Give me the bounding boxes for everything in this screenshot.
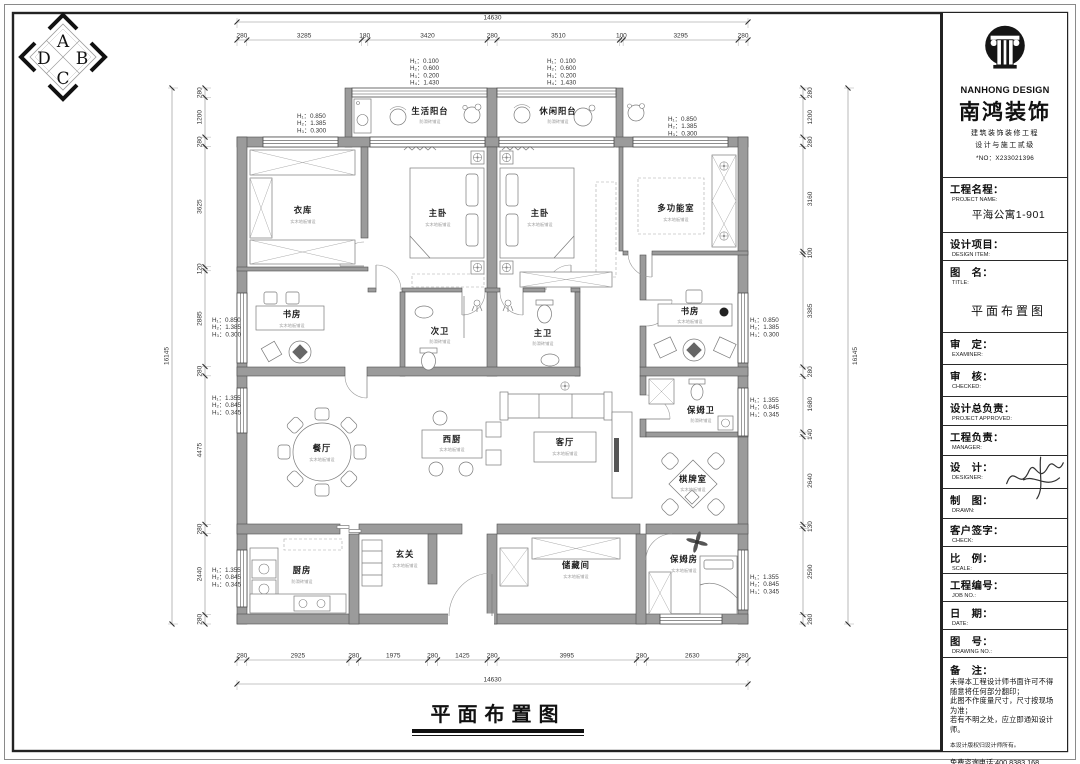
dim-label: 280 [807, 136, 814, 147]
room-name: 主卫 [534, 328, 553, 338]
elevation-line: H₁：1.355 [750, 574, 779, 581]
room-name: 棋牌室 [679, 474, 707, 484]
room-floor-note: 防滑砖铺设 [292, 578, 314, 585]
dim-label: 14630 [483, 15, 501, 22]
field-label-en: DATE: [952, 621, 1067, 627]
room-floor-note: 防滑砖铺设 [548, 118, 570, 125]
elevation-line: H₃：0.200 [547, 72, 577, 79]
elevation-line: H₁：0.850 [668, 116, 697, 123]
field-project-name: 工程名程： PROJECT NAME: 平海公寓1-901 [943, 178, 1067, 233]
dim-label: 3385 [807, 303, 814, 318]
room-floor-note: 实木地板铺设 [671, 567, 697, 574]
compass-letter-c: C [56, 69, 69, 89]
designer-signature [1001, 450, 1067, 504]
room-floor-note: 实木地板铺设 [677, 318, 703, 325]
dim-label: 1200 [807, 110, 814, 125]
elevation-line: H₁：0.100 [410, 58, 439, 65]
elevation-line: H₁：1.355 [212, 395, 241, 402]
field-label-cn: 工程负责： [950, 429, 1067, 444]
brand-name-cn: 南鸿装饰 [943, 96, 1067, 126]
elevation-line: H₃：0.345 [750, 411, 780, 418]
window [738, 550, 748, 610]
dim-label: 1200 [197, 110, 204, 125]
title-block: NANHONG DESIGN 南鸿装饰 建筑装饰装修工程 设计与施工贰级 *NO… [941, 13, 1067, 751]
field-label-en: SCALE: [952, 566, 1067, 572]
dim-total-left: 16145 [164, 86, 179, 627]
dim-label: 280 [197, 87, 204, 98]
field-label-en: DRAWN: [952, 508, 1067, 514]
elevation-stack: H₁：0.850H₂：1.385H₃：0.300 [297, 113, 327, 134]
dim-label: 280 [197, 365, 204, 376]
company-logo-icon [978, 23, 1032, 79]
elevation-line: H₂：0.600 [547, 65, 577, 72]
dim-label: 280 [487, 33, 498, 40]
dim-label: 100 [807, 247, 814, 258]
dim-label: 2925 [291, 653, 306, 660]
drawing-title-text: 平面布置图 [412, 698, 584, 727]
dim-label: 280 [738, 653, 749, 660]
elevation-line: H₂：1.385 [297, 120, 327, 127]
elevation-stack: H₁：1.355H₂：0.845H₃：0.345 [750, 397, 780, 418]
dim-label: 3625 [197, 199, 204, 214]
dim-label: 3510 [551, 33, 566, 40]
window [352, 88, 487, 97]
field-label-cn: 工程名程： [950, 181, 1067, 196]
window [738, 293, 748, 363]
room-floor-note: 实木地板铺设 [563, 573, 589, 580]
dim-label: 16145 [852, 347, 859, 365]
dim-label: 130 [807, 521, 814, 532]
room-name: 主卧 [429, 208, 448, 218]
room-floor-note: 实木地板铺设 [527, 221, 553, 228]
room-name: 次卫 [431, 326, 450, 336]
room-floor-note: 防滑砖铺设 [420, 118, 442, 125]
dim-label: 280 [807, 366, 814, 377]
dim-label: 280 [197, 523, 204, 534]
field-label-en: PROJECT NAME: [952, 197, 1067, 203]
notes-section: 备 注： 未得本工程设计师书面许可不得 随意将任何部分翻印； 此图不作度量尺寸，… [943, 658, 1067, 764]
elevation-line: H₂：1.385 [212, 324, 242, 331]
note-line: 此图不作度量尺寸，尺寸按现场 [950, 696, 1063, 706]
dim-label: 2590 [807, 564, 814, 579]
field-label-en: DRAWING NO.: [952, 649, 1067, 655]
dim-chain-top: 2803285180342028035101003295280 [235, 33, 751, 47]
title-underline-thick [412, 729, 584, 733]
room-floor-note: 实木地板铺设 [680, 486, 706, 493]
field-scale: 比 例： SCALE: [943, 547, 1067, 574]
window [263, 137, 338, 147]
field-label-en: CHECKED: [952, 384, 1067, 390]
note-line: 师。 [950, 725, 1063, 735]
elevation-line: H₂：0.845 [212, 574, 242, 581]
dim-label: 1680 [807, 397, 814, 412]
field-label-en: CHECK: [952, 538, 1067, 544]
brand-section: NANHONG DESIGN 南鸿装饰 建筑装饰装修工程 设计与施工贰级 *NO… [943, 13, 1067, 178]
room-name: 玄关 [396, 549, 415, 559]
elevation-line: H₄：1.430 [547, 80, 577, 87]
elevation-line: H₂：0.845 [750, 581, 780, 588]
room-name: 主卧 [531, 208, 550, 218]
dim-label: 280 [807, 87, 814, 98]
room-name: 衣库 [294, 205, 313, 215]
note-line: 若有不明之处，应立即通知设计 [950, 715, 1063, 725]
dim-label: 4475 [197, 443, 204, 458]
room-name: 多功能室 [657, 203, 694, 213]
compass-letter-a: A [56, 32, 70, 52]
elevation-line: H₃：0.200 [410, 72, 440, 79]
dim-label: 280 [738, 33, 749, 40]
elevation-stack: H₁：0.850H₂：1.385H₃：0.300 [668, 116, 698, 137]
field-examiner: 审 定： EXAMINER: [943, 333, 1067, 365]
room-name: 生活阳台 [411, 106, 448, 116]
dim-total-right: 16145 [844, 86, 859, 627]
elevation-stack: H₁：1.355H₂：0.845H₃：0.345 [212, 567, 242, 588]
dim-label: 140 [807, 429, 814, 440]
dim-label: 16145 [164, 347, 171, 365]
field-label-cn: 客户签字： [950, 522, 1067, 537]
field-design-item: 设计项目： DESIGN ITEM: [943, 233, 1067, 261]
hotline: 免费咨询电话:400 8383 168 [950, 758, 1063, 764]
field-label-en: DESIGN ITEM: [952, 252, 1067, 258]
dim-label: 280 [197, 614, 204, 625]
elevation-line: H₂：0.845 [212, 402, 242, 409]
dim-label: 1425 [455, 653, 470, 660]
dim-total-bottom: 14630 [235, 677, 751, 691]
elevation-line: H₃：0.300 [297, 127, 327, 134]
room-floor-note: 实木地板铺设 [392, 562, 418, 569]
dim-label: 280 [236, 653, 247, 660]
elevation-line: H₁：1.355 [212, 567, 241, 574]
window [499, 137, 614, 147]
field-label-cn: 图 名： [950, 264, 1067, 279]
field-label-cn: 审 定： [950, 336, 1067, 351]
room-name: 厨房 [293, 565, 312, 575]
field-label-en: PROJECT APPROVED: [952, 416, 1067, 422]
room-name: 书房 [283, 309, 302, 319]
brand-line1: 建筑装饰装修工程 [943, 128, 1067, 138]
field-label-cn: 设计项目： [950, 236, 1067, 251]
dim-label: 14630 [483, 677, 501, 684]
dim-label: 2440 [197, 567, 204, 582]
brand-line2: 设计与施工贰级 [943, 140, 1067, 150]
brand-license-no: *NO：X233021396 [943, 153, 1067, 162]
dim-label: 1975 [386, 653, 401, 660]
elevation-line: H₃：0.300 [668, 130, 698, 137]
room-floor-note: 实木地板铺设 [290, 218, 316, 225]
room-floor-note: 实木地板铺设 [663, 216, 689, 223]
entry-door-opening [448, 614, 494, 625]
field-label-cn: 审 核： [950, 368, 1067, 383]
field-value: 平面布置图 [950, 302, 1067, 319]
dim-chain-bottom: 28029252801975280142528039952802630280 [235, 653, 751, 667]
dim-label: 3295 [673, 33, 688, 40]
drawing-title: 平面布置图 [412, 698, 584, 736]
sheet-border [5, 5, 1076, 760]
notes-label: 备 注： [950, 662, 1063, 677]
dim-label: 280 [427, 653, 438, 660]
field-label-en: TITLE: [952, 280, 1067, 286]
dim-chain-right: 2801200280316010033852801680140264013025… [799, 86, 814, 627]
elevation-line: H₁：0.100 [547, 58, 576, 65]
window [497, 88, 616, 97]
field-job-no: 工程编号： JOB NO.: [943, 574, 1067, 602]
window [738, 388, 748, 436]
elevation-stack: H₁：0.850H₂：1.385H₃：0.300 [212, 317, 242, 338]
room-floor-note: 实木地板铺设 [439, 446, 465, 453]
field-value: 平海公寓1-901 [950, 207, 1067, 222]
dim-label: 280 [807, 614, 814, 625]
compass-letter-d: D [37, 49, 51, 69]
quadrant-compass: A B C D [21, 15, 105, 99]
field-label-cn: 工程编号： [950, 577, 1067, 592]
room-floor-note: 防滑砖铺设 [533, 340, 555, 347]
room-name: 保姆卫 [686, 405, 715, 415]
window [370, 137, 485, 147]
dim-chain-left: 28012002803625120288528044752802440280 [197, 86, 212, 627]
field-label-cn: 日 期： [950, 605, 1067, 620]
field-label-cn: 设计总负责： [950, 400, 1067, 415]
dim-label: 3995 [560, 653, 575, 660]
room-floor-note: 实木地板铺设 [279, 322, 305, 329]
title-underline-thin [412, 735, 584, 736]
elevation-line: H₂：1.385 [668, 123, 698, 130]
room-name: 客厅 [555, 437, 575, 447]
dim-label: 2885 [197, 311, 204, 326]
room-name: 储藏间 [562, 560, 590, 570]
dim-label: 2640 [807, 473, 814, 488]
compass-letter-b: B [76, 49, 89, 69]
elevation-line: H₁：0.850 [212, 317, 241, 324]
dim-label: 3420 [420, 33, 435, 40]
elevation-line: H₁：0.850 [297, 113, 326, 120]
elevation-line: H₃：0.345 [750, 588, 780, 595]
elevation-line: H₃：0.345 [212, 581, 242, 588]
elevation-line: H₃：0.300 [750, 331, 780, 338]
field-label-cn: 比 例： [950, 550, 1067, 565]
elevation-stack: H₁：1.355H₂：0.845H₃：0.345 [750, 574, 780, 595]
field-client-signature: 客户签字： CHECK: [943, 519, 1067, 547]
room-name: 保姆房 [669, 554, 698, 564]
elevation-line: H₃：0.300 [212, 331, 242, 338]
note-line: 未得本工程设计师书面许可不得 [950, 677, 1063, 687]
field-label-cn: 图 号： [950, 633, 1067, 648]
dim-label: 180 [359, 33, 370, 40]
window [633, 137, 728, 147]
dim-label: 280 [348, 653, 359, 660]
room-floor-note: 实木地板铺设 [425, 221, 451, 228]
elevation-line: H₁：1.355 [750, 397, 779, 404]
note-line: 为准； [950, 706, 1063, 716]
window [660, 614, 722, 624]
room-name: 休闲阳台 [538, 106, 576, 116]
field-project-approved: 设计总负责： PROJECT APPROVED: [943, 397, 1067, 426]
dim-label: 280 [197, 136, 204, 147]
dim-label: 280 [487, 653, 498, 660]
field-title: 图 名： TITLE: 平面布置图 [943, 261, 1067, 333]
dim-label: 100 [616, 33, 627, 40]
dim-label: 280 [236, 33, 247, 40]
dim-label: 2630 [685, 653, 700, 660]
floor-plan-svg: A B C D [0, 0, 1080, 764]
room-floor-note: 实木地板铺设 [309, 456, 335, 463]
elevation-line: H₂：0.845 [750, 404, 780, 411]
field-checked: 审 核： CHECKED: [943, 365, 1067, 397]
note-line: 随意将任何部分翻印； [950, 687, 1063, 697]
elevation-stack: H₁：0.850H₂：1.385H₃：0.300 [750, 317, 780, 338]
elevation-line: H₁：0.850 [750, 317, 779, 324]
room-floor-note: 防滑砖铺设 [691, 417, 713, 424]
elevation-stack: H₁：1.355H₂：0.845H₃：0.345 [212, 395, 242, 416]
room-floor-note: 防滑砖铺设 [430, 338, 452, 345]
dim-label: 3160 [807, 191, 814, 206]
room-name: 餐厅 [312, 443, 332, 453]
elevation-line: H₄：1.430 [410, 80, 440, 87]
drawing-sheet: A B C D [0, 0, 1080, 764]
elevation-stack: H₁：0.100H₂：0.600H₃：0.200H₄：1.430 [410, 58, 440, 87]
field-date: 日 期： DATE: [943, 602, 1067, 630]
room-floor-note: 实木地板铺设 [552, 450, 578, 457]
elevation-stack: H₁：0.100H₂：0.600H₃：0.200H₄：1.430 [547, 58, 577, 87]
dim-label: 280 [636, 653, 647, 660]
field-label-en: EXAMINER: [952, 352, 1067, 358]
elevation-line: H₃：0.345 [212, 409, 242, 416]
room-name: 西厨 [443, 434, 462, 444]
elevation-line: H₂：1.385 [750, 324, 780, 331]
elevation-line: H₂：0.600 [410, 65, 440, 72]
field-drawing-no: 图 号： DRAWING NO.: [943, 630, 1067, 658]
room-name: 书房 [681, 306, 700, 316]
brand-name-en: NANHONG DESIGN [943, 85, 1067, 95]
copyright-note: 本设计版权归设计师所有。 [950, 740, 1063, 749]
dim-label: 3285 [297, 33, 312, 40]
field-designer: 设 计： DESIGNER: [943, 456, 1067, 489]
dim-label: 120 [197, 263, 204, 274]
field-label-en: JOB NO.: [952, 593, 1067, 599]
dim-total-top: 14630 [235, 15, 751, 29]
